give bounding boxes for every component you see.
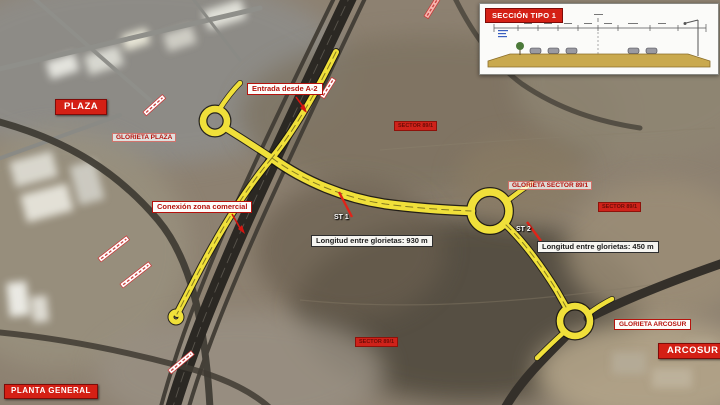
- section-roadbed: [488, 54, 710, 67]
- label-sector-891-a: SECTOR 89/1: [394, 121, 437, 131]
- label-glorieta-arcosur: GLORIETA ARCOSUR: [614, 319, 691, 330]
- section-lamp-post: [684, 20, 699, 56]
- label-conexion-comercial: Conexión zona comercial: [152, 201, 252, 213]
- label-longitud-930: Longitud entre glorietas: 930 m: [311, 235, 433, 247]
- section-tree: [516, 42, 524, 55]
- label-glorieta-plaza: GLORIETA PLAZA: [112, 133, 176, 142]
- label-st2: ST 2: [516, 226, 531, 234]
- section-type-panel: SECCIÓN TIPO 1: [479, 3, 719, 75]
- road-cross-section-diagram: [480, 4, 716, 72]
- label-plaza: PLAZA: [55, 99, 107, 115]
- label-glorieta-sector: GLORIETA SECTOR 89/1: [508, 181, 592, 190]
- label-sector-891-b: SECTOR 89/1: [598, 202, 641, 212]
- label-arcosur: ARCOSUR: [658, 343, 720, 359]
- label-sector-891-c: SECTOR 89/1: [355, 337, 398, 347]
- label-st1: ST 1: [334, 214, 349, 222]
- label-entrada-a2: Entrada desde A-2: [247, 83, 323, 95]
- label-longitud-450: Longitud entre glorietas: 450 m: [537, 241, 659, 253]
- label-planta-general: PLANTA GENERAL: [4, 384, 98, 399]
- section-vehicles: [530, 48, 657, 54]
